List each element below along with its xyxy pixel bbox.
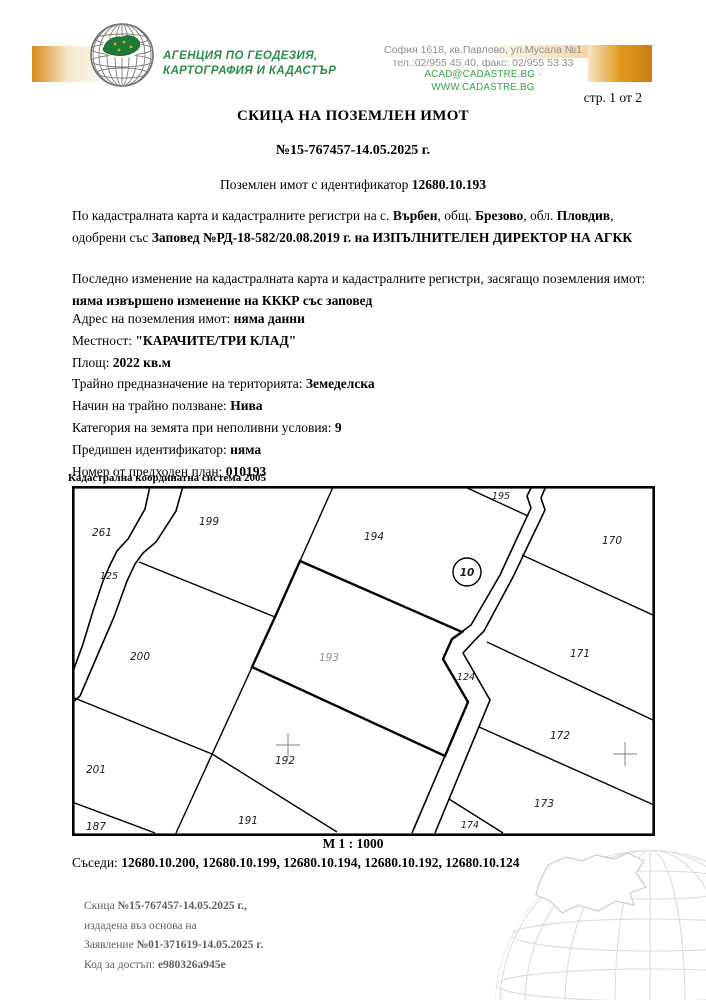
detail-row-category: Категория на земята при неполивни услови… (72, 417, 650, 439)
document-number: №15-767457-14.05.2025 г. (0, 143, 706, 159)
detail-value: 9 (335, 420, 342, 435)
detail-row-address: Адрес на поземления имот: няма данни (72, 308, 650, 330)
footer-text: Заявление (84, 939, 137, 951)
parcel-label-172: 172 (550, 730, 570, 742)
amendment-status: няма извършено изменение на КККР със зап… (72, 293, 372, 308)
detail-label: Категория на земята при неполивни услови… (72, 420, 335, 435)
phone-line: тел.:02/955 45 40, факс: 02/955 53 33 (380, 57, 586, 70)
property-details-list: Адрес на поземления имот: няма данни Мес… (72, 308, 650, 482)
document-title: СКИЦА НА ПОЗЕМЛЕН ИМОТ (0, 108, 706, 125)
footer-text: Скица (84, 900, 118, 912)
footer-access-code-value: e980326a945e (158, 959, 226, 971)
detail-label: Местност: (72, 333, 135, 348)
cadastre-sketch-document: АГЕНЦИЯ ПО ГЕОДЕЗИЯ, КАРТОГРАФИЯ И КАДАС… (0, 0, 706, 1000)
road-parcel-124 (412, 486, 546, 833)
cadastral-region-number: 10 (460, 567, 475, 579)
order-reference: Заповед №РД-18-582/20.08.2019 г. на ИЗПЪ… (152, 230, 632, 245)
subject-parcel-193-outline (252, 561, 468, 756)
detail-row-territory-purpose: Трайно предназначение на територията: Зе… (72, 373, 650, 395)
footer-application-number: Заявление №01-371619-14.05.2025 г. (84, 936, 263, 956)
email-website-line: ACAD@CADASTRE.BG · WWW.CADASTRE.BG (380, 69, 586, 94)
parcel-label-187: 187 (86, 821, 106, 833)
footer-sketch-number-value: №15-767457-14.05.2025 г., (118, 900, 248, 912)
grid-cross-icon (276, 733, 300, 757)
road-label-124: 124 (457, 672, 475, 683)
detail-value: няма данни (234, 311, 305, 326)
parcel-label-170: 170 (602, 535, 622, 547)
detail-value: Земеделска (306, 376, 375, 391)
detail-label: Площ: (72, 355, 113, 370)
parcel-label-201: 201 (86, 764, 106, 776)
property-identifier-line: Поземлен имот с идентификатор 12680.10.1… (0, 177, 706, 193)
footer-issuance-block: Скица №15-767457-14.05.2025 г., издадена… (84, 897, 263, 975)
boundary-201-187 (72, 802, 155, 833)
footer-sketch-number: Скица №15-767457-14.05.2025 г., (84, 897, 263, 917)
detail-value: 2022 кв.м (113, 355, 171, 370)
agency-globe-logo-icon (88, 18, 156, 90)
parcel-label-191: 191 (238, 815, 258, 827)
grid-cross-markers (276, 733, 637, 766)
detail-value: Нива (230, 398, 262, 413)
agency-name-line2: КАРТОГРАФИЯ И КАДАСТЪР (163, 64, 363, 79)
boundary-200-201 (72, 697, 212, 754)
parcel-label-192: 192 (275, 755, 295, 767)
boundary-170-171 (522, 555, 655, 616)
text-segment: Последно изменение на кадастралната карт… (72, 271, 645, 286)
detail-label: Предишен идентификатор: (72, 442, 230, 457)
text-segment: , обл. (523, 208, 557, 223)
parcel-label-261: 261 (92, 527, 112, 539)
detail-label: Начин на трайно ползване: (72, 398, 230, 413)
road-parcel-125 (72, 486, 183, 703)
identifier-prefix: Поземлен имот с идентификатор (220, 177, 412, 192)
detail-label: Адрес на поземления имот: (72, 311, 234, 326)
footer-text: Код за достъп: (84, 959, 158, 971)
parcel-label-171: 171 (570, 648, 590, 660)
parcel-label-194: 194 (364, 531, 384, 543)
footer-access-code: Код за достъп: e980326a945e (84, 956, 263, 976)
detail-value: "КАРАЧИТЕ/ТРИ КЛАД" (135, 333, 296, 348)
paragraph-last-amendment: Последно изменение на кадастралната карт… (72, 268, 650, 312)
coordinate-system-label: Кадастрална координатна система 2005 (68, 472, 266, 484)
parcel-label-173: 173 (534, 798, 554, 810)
parcel-label-195: 195 (492, 491, 510, 502)
agency-address-block: София 1618, кв.Павлово, ул.Мусала №1 тел… (380, 44, 586, 94)
text-segment: По кадастралната карта и кадастралните р… (72, 208, 393, 223)
text-segment: , общ. (438, 208, 476, 223)
subject-parcel-label-193: 193 (319, 652, 339, 664)
municipality-name: Брезово (475, 208, 523, 223)
neighbors-line: Съседи: 12680.10.200, 12680.10.199, 1268… (72, 855, 519, 871)
parcel-label-200: 200 (130, 651, 150, 663)
neighbors-ids: 12680.10.200, 12680.10.199, 12680.10.194… (121, 855, 519, 870)
detail-value: няма (230, 442, 261, 457)
paragraph-cadastral-map: По кадастралната карта и кадастралните р… (72, 205, 650, 249)
agency-name-line1: АГЕНЦИЯ ПО ГЕОДЕЗИЯ, (163, 49, 363, 64)
address-line: София 1618, кв.Павлово, ул.Мусала №1 (380, 44, 586, 57)
road-label-125: 125 (100, 571, 118, 582)
detail-row-previous-identifier: Предишен идентификатор: няма (72, 439, 650, 461)
region-name: Пловдив (557, 208, 610, 223)
footer-application-number-value: №01-371619-14.05.2025 г. (137, 939, 264, 951)
bulgaria-outline-watermark (536, 853, 646, 913)
neighbors-label: Съседи: (72, 855, 121, 870)
grid-cross-icon (613, 742, 637, 766)
detail-label: Трайно предназначение на територията: (72, 376, 306, 391)
header-orange-bar-right (588, 45, 652, 82)
parcel-label-199: 199 (199, 516, 219, 528)
identifier-value: 12680.10.193 (412, 177, 486, 192)
footer-issued-on-basis: издадена въз основа на (84, 917, 263, 937)
agency-name: АГЕНЦИЯ ПО ГЕОДЕЗИЯ, КАРТОГРАФИЯ И КАДАС… (163, 49, 363, 79)
detail-row-land-use: Начин на трайно ползване: Нива (72, 395, 650, 417)
boundary-199-200 (139, 562, 275, 617)
cadastral-map: 10 261 199 195 194 170 171 124 172 173 1… (72, 486, 655, 836)
detail-row-locality: Местност: "КАРАЧИТЕ/ТРИ КЛАД" (72, 330, 650, 352)
detail-row-area: Площ: 2022 кв.м (72, 352, 650, 374)
village-name: Върбен (393, 208, 438, 223)
page-indicator: стр. 1 от 2 (584, 90, 642, 106)
parcel-label-174: 174 (461, 820, 479, 831)
